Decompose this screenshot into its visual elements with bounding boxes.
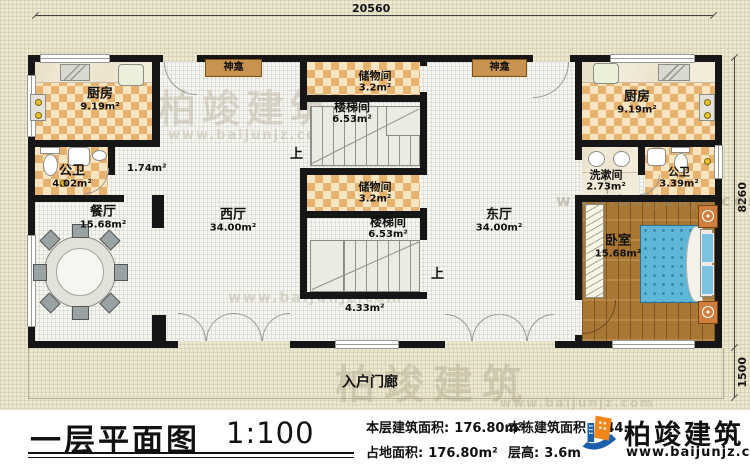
cooktop-icon bbox=[60, 64, 90, 81]
wall bbox=[300, 211, 427, 218]
wall bbox=[420, 62, 427, 66]
pillow-icon bbox=[701, 265, 714, 295]
dimension-right-porch: 1500 bbox=[736, 357, 749, 388]
wall bbox=[300, 62, 307, 110]
wall bbox=[108, 147, 115, 175]
wall bbox=[28, 140, 160, 147]
room-label-kitchen-left: 厨房 9.19m² bbox=[80, 87, 119, 112]
shower-fixture-icon bbox=[704, 158, 711, 165]
chair-icon bbox=[33, 264, 47, 281]
wall bbox=[638, 147, 645, 175]
wall bbox=[28, 341, 178, 348]
wall bbox=[715, 55, 722, 145]
chair-icon bbox=[72, 306, 89, 320]
toilet-tank-icon bbox=[40, 147, 60, 154]
company-url: www.baijunjz.com bbox=[626, 445, 750, 460]
wall bbox=[300, 292, 427, 299]
pillow-icon bbox=[701, 233, 714, 263]
window bbox=[612, 340, 695, 349]
window bbox=[27, 235, 36, 327]
stove-icon bbox=[699, 94, 715, 121]
window bbox=[714, 145, 723, 179]
room-label-dining: 餐厅 15.68m² bbox=[80, 205, 126, 230]
wall bbox=[555, 341, 612, 348]
wall bbox=[28, 325, 35, 348]
area-label-entry-nook: 4.33m² bbox=[345, 303, 384, 314]
wall bbox=[28, 55, 35, 75]
stat-footprint-area: 占地面积: 176.80m² bbox=[366, 442, 498, 461]
sheet-scale: 1:100 bbox=[226, 416, 315, 450]
burner-icon bbox=[35, 99, 42, 106]
dimension-top: 20560 bbox=[352, 2, 390, 15]
washbasin-icon bbox=[588, 151, 605, 167]
stair-up-label: 上 bbox=[290, 143, 303, 162]
wall bbox=[582, 140, 715, 147]
shrine-east: 神龛 bbox=[472, 59, 527, 77]
room-label-east-hall: 东厅 34.00m² bbox=[476, 208, 522, 233]
cooktop-icon bbox=[658, 64, 690, 81]
wall bbox=[300, 168, 307, 299]
room-label-stair-top: 楼梯间 6.53m² bbox=[332, 101, 371, 125]
burner-icon bbox=[704, 99, 711, 106]
window bbox=[335, 340, 399, 349]
stair-landing bbox=[311, 241, 344, 291]
wall bbox=[575, 55, 582, 160]
burner-icon bbox=[704, 112, 711, 119]
room-label-porch: 入户门廊 bbox=[342, 375, 398, 390]
chair-icon bbox=[114, 264, 128, 281]
wall bbox=[108, 55, 163, 62]
title-underline bbox=[28, 452, 354, 454]
wall bbox=[28, 135, 35, 235]
company-logo-icon bbox=[578, 411, 622, 457]
washbasin-icon bbox=[92, 150, 107, 161]
stat-floor-area: 本层建筑面积: 176.80m² bbox=[366, 417, 524, 436]
wall bbox=[582, 195, 715, 202]
nightstand-icon bbox=[698, 301, 718, 324]
title-underline bbox=[28, 457, 354, 458]
dimension-line-top bbox=[35, 15, 713, 16]
stair-up-label: 上 bbox=[431, 263, 444, 282]
wall bbox=[575, 195, 582, 300]
wall bbox=[152, 195, 164, 228]
window bbox=[40, 54, 110, 63]
kitchen-sink-icon bbox=[593, 63, 619, 84]
room-label-bath-left: 公卫 4.02m² bbox=[52, 164, 91, 189]
room-label-bedroom: 卧室 15.68m² bbox=[595, 234, 641, 259]
burner-icon bbox=[35, 112, 42, 119]
washbasin-icon bbox=[647, 148, 666, 166]
dimension-line-right-main bbox=[734, 57, 735, 347]
wall bbox=[152, 62, 160, 140]
room-label-storage-top: 储物间 3.2m² bbox=[359, 70, 392, 93]
lamp-icon bbox=[702, 306, 714, 318]
stat-floor-height: 层高: 3.6m bbox=[508, 442, 581, 461]
dimension-line-right-porch bbox=[734, 347, 735, 398]
dimension-right-main: 8260 bbox=[736, 182, 749, 213]
wall bbox=[152, 315, 166, 341]
floor-plan-sheet: 20560 8260 1500 柏竣建筑 www.baijunjz.com ww… bbox=[0, 0, 750, 471]
shrine-west: 神龛 bbox=[205, 59, 262, 77]
wall bbox=[397, 341, 445, 348]
area-label-corridor: 1.74m² bbox=[127, 163, 166, 174]
kitchen-sink-icon bbox=[118, 64, 144, 86]
wall bbox=[300, 168, 427, 175]
room-label-storage-bottom: 储物间 3.2m² bbox=[359, 181, 392, 204]
room-label-kitchen-right: 厨房 9.19m² bbox=[617, 90, 656, 115]
lamp-icon bbox=[702, 210, 714, 222]
wall bbox=[28, 195, 124, 202]
room-label-bath-right: 公卫 3.39m² bbox=[659, 166, 698, 189]
wall bbox=[420, 92, 427, 168]
stove-icon bbox=[30, 94, 46, 121]
wall bbox=[575, 335, 582, 348]
dining-table-top bbox=[56, 248, 104, 296]
room-label-washroom: 洗漱间 2.73m² bbox=[586, 169, 625, 192]
room-label-west-hall: 西厅 34.00m² bbox=[210, 208, 256, 233]
nightstand-icon bbox=[698, 205, 718, 228]
window bbox=[610, 54, 695, 63]
washbasin-icon bbox=[613, 151, 630, 167]
wall bbox=[290, 341, 335, 348]
room-label-stair-bottom: 楼梯间 6.53m² bbox=[368, 216, 407, 240]
